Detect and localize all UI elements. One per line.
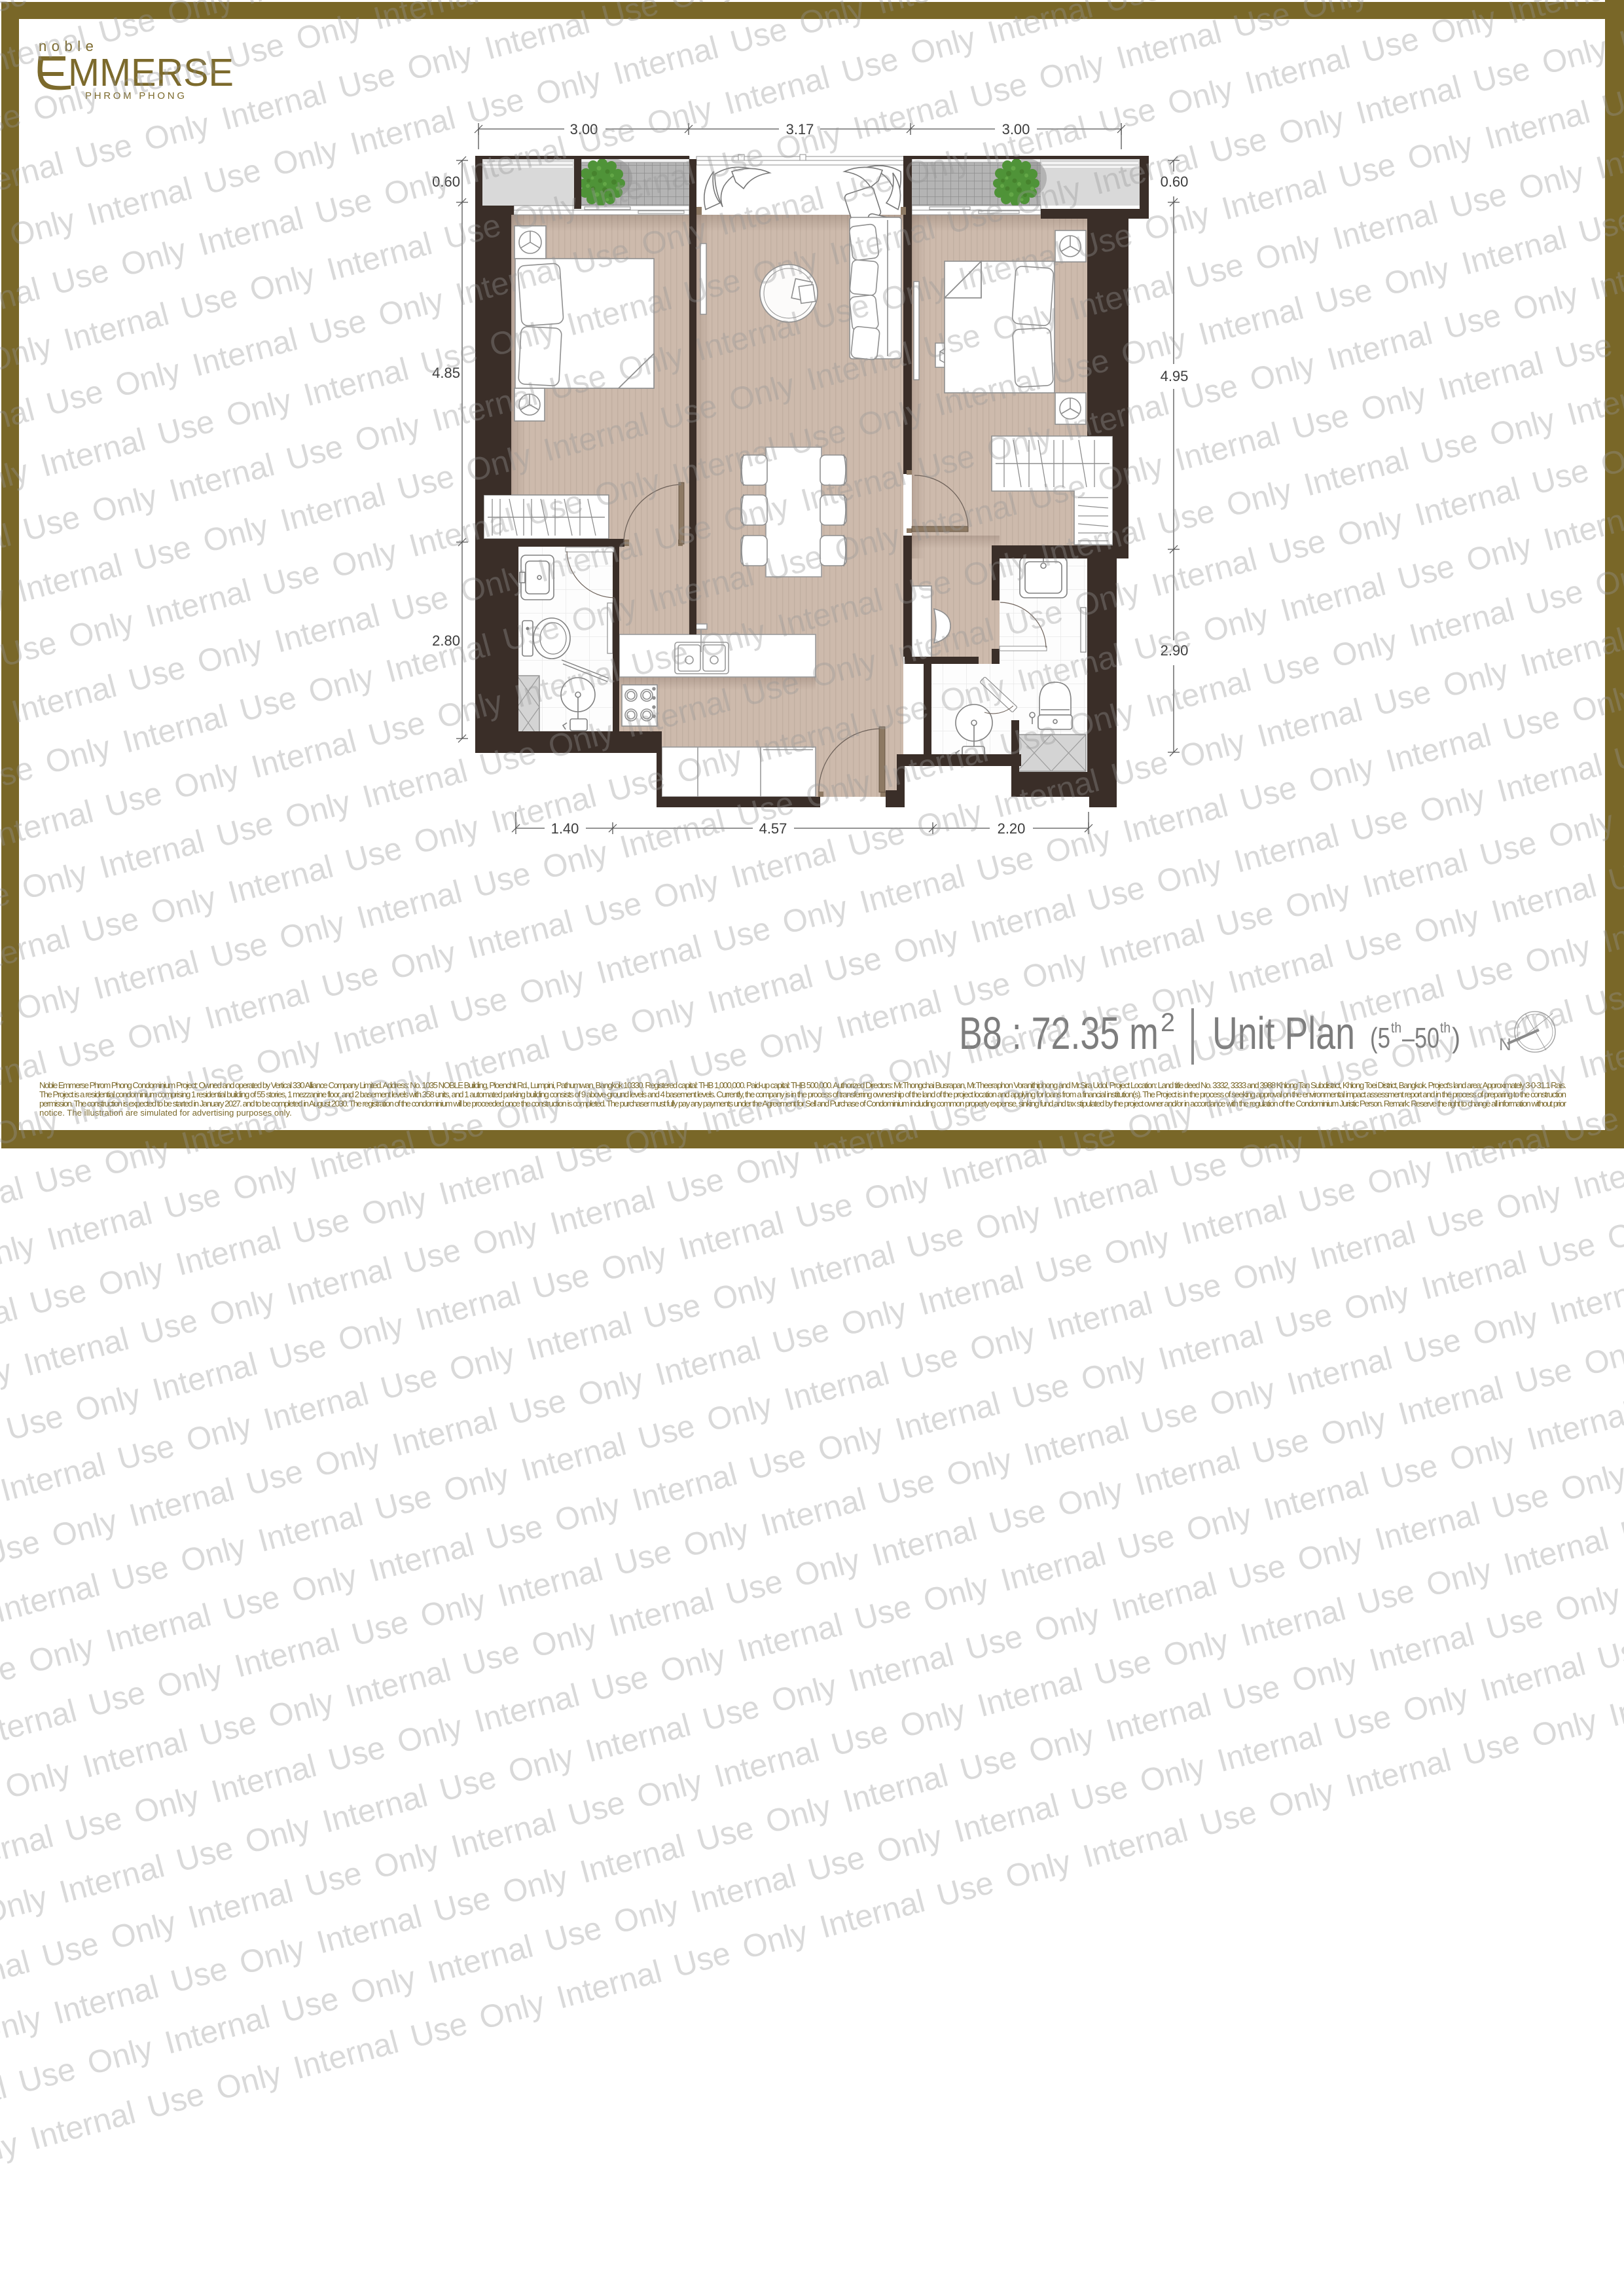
svg-text:th: th bbox=[1440, 1019, 1451, 1036]
svg-text:notice. The illustration are s: notice. The illustration are simulated f… bbox=[39, 1108, 292, 1118]
svg-text:4.95: 4.95 bbox=[1161, 368, 1189, 384]
svg-text:3.00: 3.00 bbox=[570, 121, 598, 137]
svg-text:0.60: 0.60 bbox=[432, 174, 460, 190]
svg-text:4.85: 4.85 bbox=[432, 365, 460, 381]
svg-text:–50: –50 bbox=[1402, 1022, 1439, 1054]
svg-text:(5: (5 bbox=[1370, 1022, 1390, 1054]
svg-text:2.90: 2.90 bbox=[1161, 642, 1189, 659]
svg-text:th: th bbox=[1391, 1019, 1401, 1036]
svg-text:2: 2 bbox=[1161, 1008, 1175, 1037]
svg-text:2.80: 2.80 bbox=[432, 632, 460, 649]
svg-text:4.57: 4.57 bbox=[759, 820, 787, 837]
svg-text:1.40: 1.40 bbox=[551, 820, 579, 837]
svg-text:The Project is a residential c: The Project is a residential condominium… bbox=[39, 1089, 1566, 1099]
svg-text:3.00: 3.00 bbox=[1002, 121, 1030, 137]
svg-text:Noble Emmerse Phrom Phong Cond: Noble Emmerse Phrom Phong Condominium Pr… bbox=[39, 1080, 1566, 1090]
svg-text:3.17: 3.17 bbox=[786, 121, 814, 137]
svg-text:MMERSE: MMERSE bbox=[68, 51, 234, 94]
svg-text:): ) bbox=[1452, 1022, 1460, 1054]
svg-text:permission. The construction i: permission. The construction is expected… bbox=[39, 1099, 1567, 1108]
svg-text:2.20: 2.20 bbox=[998, 820, 1026, 837]
svg-text:N: N bbox=[1499, 1034, 1511, 1054]
svg-text:Unit Plan: Unit Plan bbox=[1212, 1008, 1355, 1059]
svg-text:0.60: 0.60 bbox=[1161, 174, 1189, 190]
svg-text:B8 : 72.35 m: B8 : 72.35 m bbox=[959, 1008, 1159, 1059]
svg-text:PHROM PHONG: PHROM PHONG bbox=[85, 90, 187, 101]
